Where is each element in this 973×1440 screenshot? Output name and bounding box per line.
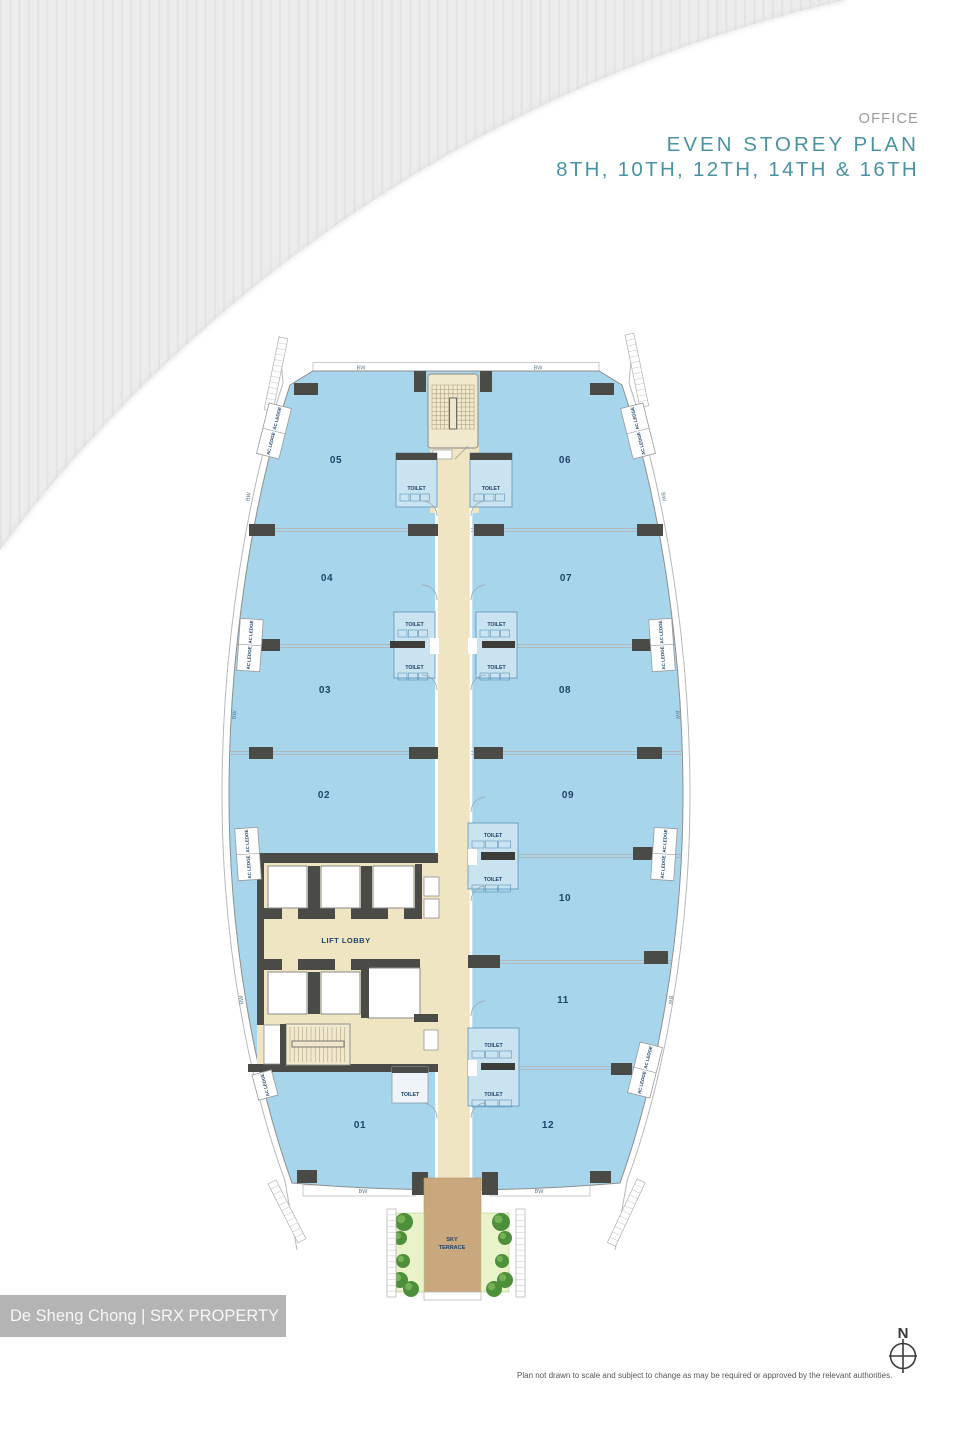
- svg-text:07: 07: [560, 573, 572, 584]
- svg-text:01: 01: [354, 1120, 366, 1131]
- svg-text:BW: BW: [232, 710, 239, 720]
- svg-text:TOILET: TOILET: [484, 1043, 503, 1049]
- svg-text:06: 06: [559, 455, 571, 466]
- svg-text:05: 05: [330, 455, 342, 466]
- svg-text:TOILET: TOILET: [487, 622, 506, 628]
- svg-text:N: N: [898, 1325, 909, 1342]
- svg-text:BW: BW: [359, 1189, 369, 1195]
- svg-text:04: 04: [321, 573, 333, 584]
- svg-text:TERRACE: TERRACE: [439, 1245, 466, 1251]
- svg-text:BW: BW: [667, 995, 674, 1005]
- svg-text:TOILET: TOILET: [487, 665, 506, 671]
- svg-text:02: 02: [318, 790, 330, 801]
- svg-text:TOILET: TOILET: [405, 622, 424, 628]
- svg-text:11: 11: [557, 995, 569, 1006]
- svg-text:TOILET: TOILET: [484, 877, 503, 883]
- svg-text:03: 03: [319, 685, 331, 696]
- svg-text:BW: BW: [674, 710, 681, 720]
- svg-text:SKY: SKY: [446, 1237, 458, 1243]
- svg-text:BW: BW: [239, 995, 246, 1005]
- svg-text:12: 12: [542, 1120, 554, 1131]
- svg-text:BW: BW: [535, 1189, 545, 1195]
- svg-text:TOILET: TOILET: [484, 1092, 503, 1098]
- svg-text:LIFT LOBBY: LIFT LOBBY: [321, 936, 370, 945]
- svg-text:TOILET: TOILET: [482, 486, 501, 492]
- svg-text:TOILET: TOILET: [407, 486, 426, 492]
- svg-text:08: 08: [559, 685, 571, 696]
- svg-text:TOILET: TOILET: [484, 833, 503, 839]
- svg-text:BW: BW: [534, 366, 544, 372]
- svg-text:09: 09: [562, 790, 574, 801]
- svg-text:10: 10: [559, 893, 571, 904]
- svg-text:TOILET: TOILET: [401, 1092, 420, 1098]
- svg-text:BW: BW: [357, 366, 367, 372]
- svg-text:TOILET: TOILET: [405, 665, 424, 671]
